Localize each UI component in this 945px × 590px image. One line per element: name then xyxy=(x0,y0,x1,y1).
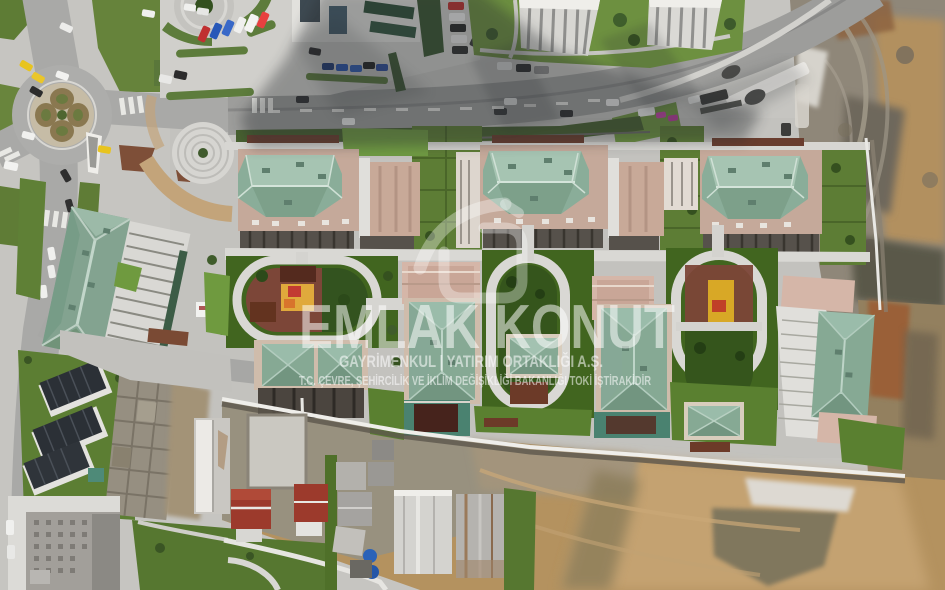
svg-text:GAYRİMENKUL | YATIRIM ORTAKLIĞ: GAYRİMENKUL | YATIRIM ORTAKLIĞI A.Ş. xyxy=(339,352,603,371)
svg-text:EMLAK KONUT: EMLAK KONUT xyxy=(299,293,675,362)
svg-text:T.C. ÇEVRE, ŞEHİRCİLİK VE İKLİ: T.C. ÇEVRE, ŞEHİRCİLİK VE İKLİM DEĞİŞİKL… xyxy=(299,373,651,388)
